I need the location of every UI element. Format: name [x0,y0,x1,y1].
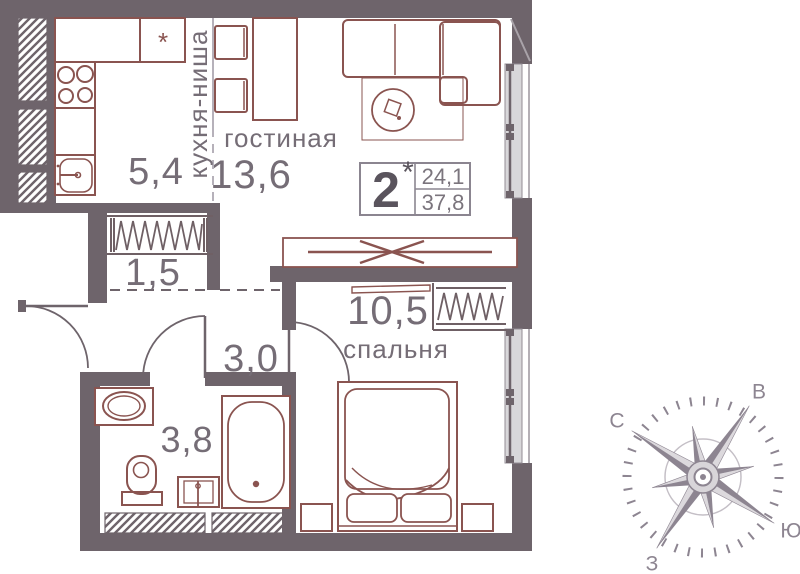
floor-plan: 5,4 кухня-ниша * гостиная 13,6 1,5 3,0 1… [0,0,800,574]
living-room-window [505,64,529,198]
floor-plan-drawing [0,0,800,574]
bathroom-area-label: 3,8 [160,422,213,458]
compass-north-label: С [609,411,624,432]
bedroom-closet-hangers [433,283,507,330]
wardrobe-hangers [107,216,213,254]
info-total-area: 37,8 [422,192,465,214]
bedroom-window [505,329,529,463]
living-room-name-label: гостиная [224,125,338,151]
living-room-area-label: 13,6 [210,155,292,195]
wardrobe-area-label: 1,5 [125,254,181,292]
info-rooms-star: * [402,158,414,188]
compass-rose [585,359,800,574]
compass-south-label: Ю [780,521,800,542]
compass-east-label: В [752,382,766,403]
hallway-area-label: 3,0 [223,340,279,378]
bedroom-name-label: спальня [343,336,449,362]
fridge-icon: * [158,29,168,55]
bedroom-area-label: 10,5 [347,291,429,331]
kitchen-area-label: 5,4 [128,153,184,191]
entrance-door [26,306,88,368]
info-living-area: 24,1 [422,166,465,188]
compass-west-label: З [646,554,659,574]
info-rooms-count: 2 [372,165,400,215]
bedroom-door [289,322,349,382]
kitchen-niche-name-label: кухня-ниша [185,30,211,179]
bathroom-door [143,316,205,378]
